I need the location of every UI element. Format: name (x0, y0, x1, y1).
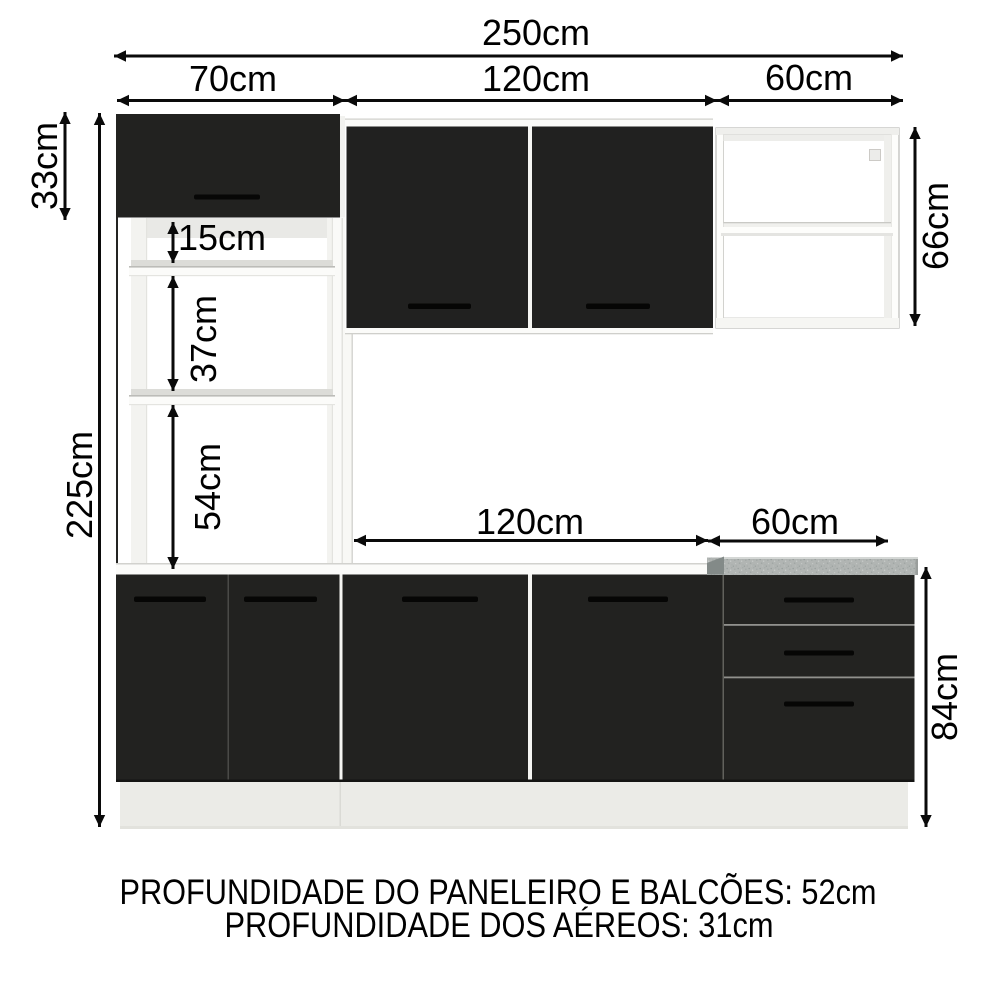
svg-text:37cm: 37cm (183, 295, 224, 383)
svg-text:120cm: 120cm (476, 501, 584, 542)
svg-text:60cm: 60cm (765, 57, 853, 98)
svg-text:120cm: 120cm (482, 58, 590, 99)
svg-text:70cm: 70cm (189, 58, 277, 99)
svg-text:54cm: 54cm (187, 443, 228, 531)
svg-text:PROFUNDIDADE DOS AÉREOS: 31cm: PROFUNDIDADE DOS AÉREOS: 31cm (225, 906, 774, 945)
svg-text:33cm: 33cm (24, 122, 65, 210)
svg-text:225cm: 225cm (59, 431, 100, 539)
svg-text:15cm: 15cm (178, 217, 266, 258)
svg-text:84cm: 84cm (924, 653, 965, 741)
svg-text:66cm: 66cm (915, 182, 956, 270)
svg-text:60cm: 60cm (751, 501, 839, 542)
svg-text:250cm: 250cm (482, 12, 590, 53)
